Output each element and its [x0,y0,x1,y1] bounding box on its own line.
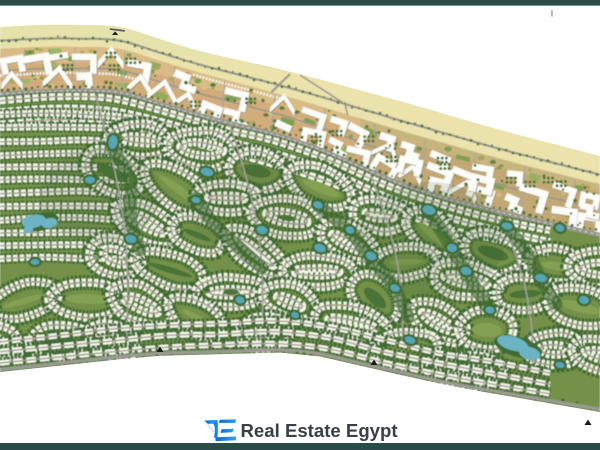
svg-text:Real Estate Egypt: Real Estate Egypt [241,420,398,441]
